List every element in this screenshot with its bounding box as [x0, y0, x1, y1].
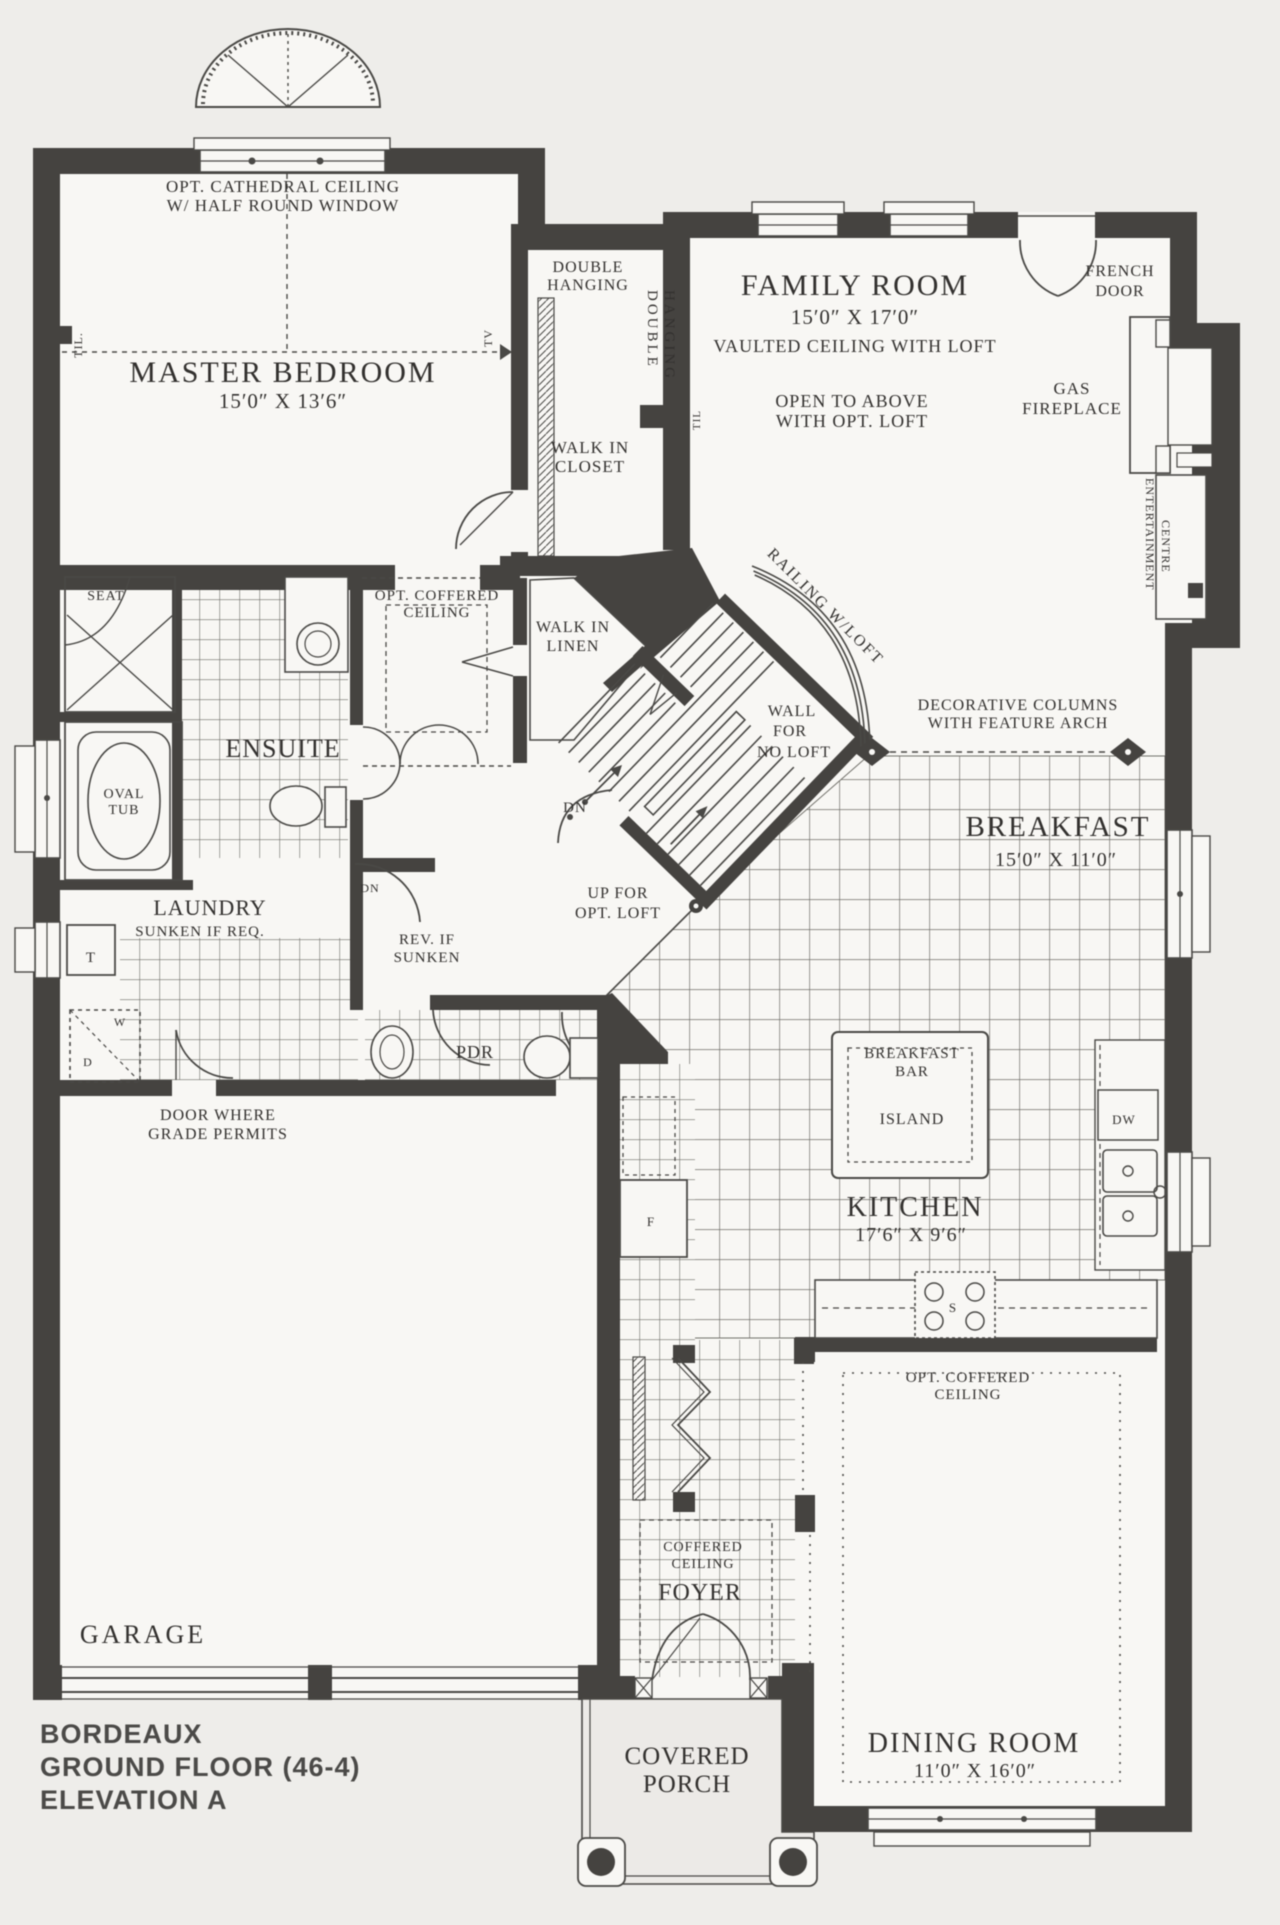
svg-text:FIREPLACE: FIREPLACE [1022, 399, 1122, 418]
svg-text:DOOR: DOOR [1095, 283, 1144, 300]
svg-text:FAMILY ROOM: FAMILY ROOM [741, 269, 969, 302]
svg-text:UP FOR: UP FOR [588, 885, 649, 902]
svg-text:DOUBLE: DOUBLE [553, 259, 624, 276]
svg-text:GARAGE: GARAGE [80, 1620, 206, 1649]
svg-text:WALL: WALL [768, 703, 816, 720]
svg-text:CEILING: CEILING [404, 605, 471, 621]
svg-text:S: S [949, 1300, 957, 1315]
svg-text:CLOSET: CLOSET [555, 457, 625, 476]
svg-text:PDR: PDR [456, 1042, 494, 1062]
svg-text:ELEVATION A: ELEVATION A [40, 1785, 228, 1815]
svg-text:BAR: BAR [895, 1064, 929, 1080]
svg-text:OPT. CATHEDRAL CEILING: OPT. CATHEDRAL CEILING [166, 177, 400, 196]
svg-text:NO LOFT: NO LOFT [757, 744, 831, 761]
svg-text:FOYER: FOYER [658, 1580, 742, 1606]
svg-text:15′0″ X 13′6″: 15′0″ X 13′6″ [219, 389, 347, 413]
svg-text:WITH OPT. LOFT: WITH OPT. LOFT [776, 411, 928, 431]
svg-text:DN: DN [563, 800, 587, 816]
svg-text:DECORATIVE COLUMNS: DECORATIVE COLUMNS [918, 697, 1119, 714]
svg-text:15′0″ X 11′0″: 15′0″ X 11′0″ [995, 849, 1117, 871]
svg-text:BREAKFAST: BREAKFAST [965, 811, 1150, 843]
svg-text:WITH FEATURE ARCH: WITH FEATURE ARCH [928, 715, 1109, 732]
svg-text:DW: DW [1112, 1112, 1136, 1127]
svg-text:DN: DN [360, 881, 379, 895]
svg-text:FOR: FOR [773, 723, 807, 740]
svg-text:DOOR WHERE: DOOR WHERE [160, 1107, 276, 1124]
svg-text:T: T [86, 950, 96, 966]
svg-text:15′0″ X 17′0″: 15′0″ X 17′0″ [791, 305, 919, 329]
svg-text:DOUBLE: DOUBLE [644, 290, 660, 369]
svg-text:D: D [83, 1055, 93, 1069]
svg-text:KITCHEN: KITCHEN [847, 1192, 984, 1223]
svg-text:SUNKEN: SUNKEN [394, 950, 461, 966]
svg-text:W: W [114, 1015, 126, 1029]
svg-text:BREAKFAST: BREAKFAST [864, 1046, 959, 1062]
svg-text:VAULTED CEILING WITH LOFT: VAULTED CEILING WITH LOFT [713, 336, 996, 356]
svg-text:OPT. COFFERED: OPT. COFFERED [906, 1370, 1030, 1386]
svg-text:CEILING: CEILING [935, 1387, 1002, 1403]
svg-text:OPT. LOFT: OPT. LOFT [575, 905, 661, 922]
svg-text:WALK IN: WALK IN [536, 619, 610, 636]
svg-text:LINEN: LINEN [547, 638, 600, 655]
svg-text:OPT. COFFERED: OPT. COFFERED [375, 588, 499, 604]
svg-text:LAUNDRY: LAUNDRY [153, 895, 266, 920]
svg-text:MASTER BEDROOM: MASTER BEDROOM [129, 356, 436, 389]
svg-text:11′0″ X 16′0″: 11′0″ X 16′0″ [914, 1760, 1036, 1782]
svg-text:SUNKEN IF REQ.: SUNKEN IF REQ. [135, 924, 264, 940]
svg-text:TUB: TUB [109, 803, 140, 818]
svg-text:SEAT: SEAT [87, 589, 124, 604]
svg-text:W/ HALF ROUND WINDOW: W/ HALF ROUND WINDOW [167, 196, 400, 215]
svg-text:GRADE PERMITS: GRADE PERMITS [148, 1126, 288, 1143]
svg-text:F: F [647, 1214, 655, 1229]
svg-text:HANGING: HANGING [661, 290, 677, 381]
svg-text:ISLAND: ISLAND [880, 1111, 945, 1128]
svg-text:CEILING: CEILING [672, 1557, 735, 1572]
svg-text:COVERED: COVERED [624, 1743, 749, 1770]
svg-text:WALK IN: WALK IN [551, 438, 629, 457]
svg-text:ENTERTAINMENT: ENTERTAINMENT [1143, 478, 1157, 591]
svg-text:DINING ROOM: DINING ROOM [868, 1728, 1081, 1759]
svg-text:PORCH: PORCH [643, 1771, 731, 1798]
svg-text:TV: TV [481, 329, 495, 347]
svg-text:17′6″ X 9′6″: 17′6″ X 9′6″ [855, 1224, 967, 1246]
svg-text:ENSUITE: ENSUITE [225, 734, 340, 763]
svg-text:FRENCH: FRENCH [1085, 263, 1154, 280]
svg-text:OPEN TO ABOVE: OPEN TO ABOVE [775, 391, 928, 411]
svg-text:REV. IF: REV. IF [399, 932, 455, 948]
svg-text:HANGING: HANGING [547, 277, 629, 294]
svg-text:OVAL: OVAL [103, 787, 144, 802]
svg-text:GROUND FLOOR (46-4): GROUND FLOOR (46-4) [40, 1752, 361, 1782]
svg-text:GAS: GAS [1053, 379, 1090, 398]
svg-text:CENTRE: CENTRE [1159, 520, 1173, 573]
svg-text:COFFERED: COFFERED [663, 1540, 743, 1555]
svg-text:BORDEAUX: BORDEAUX [40, 1719, 203, 1749]
svg-text:TIL: TIL [691, 410, 703, 430]
svg-text:TIL.: TIL. [71, 332, 85, 358]
